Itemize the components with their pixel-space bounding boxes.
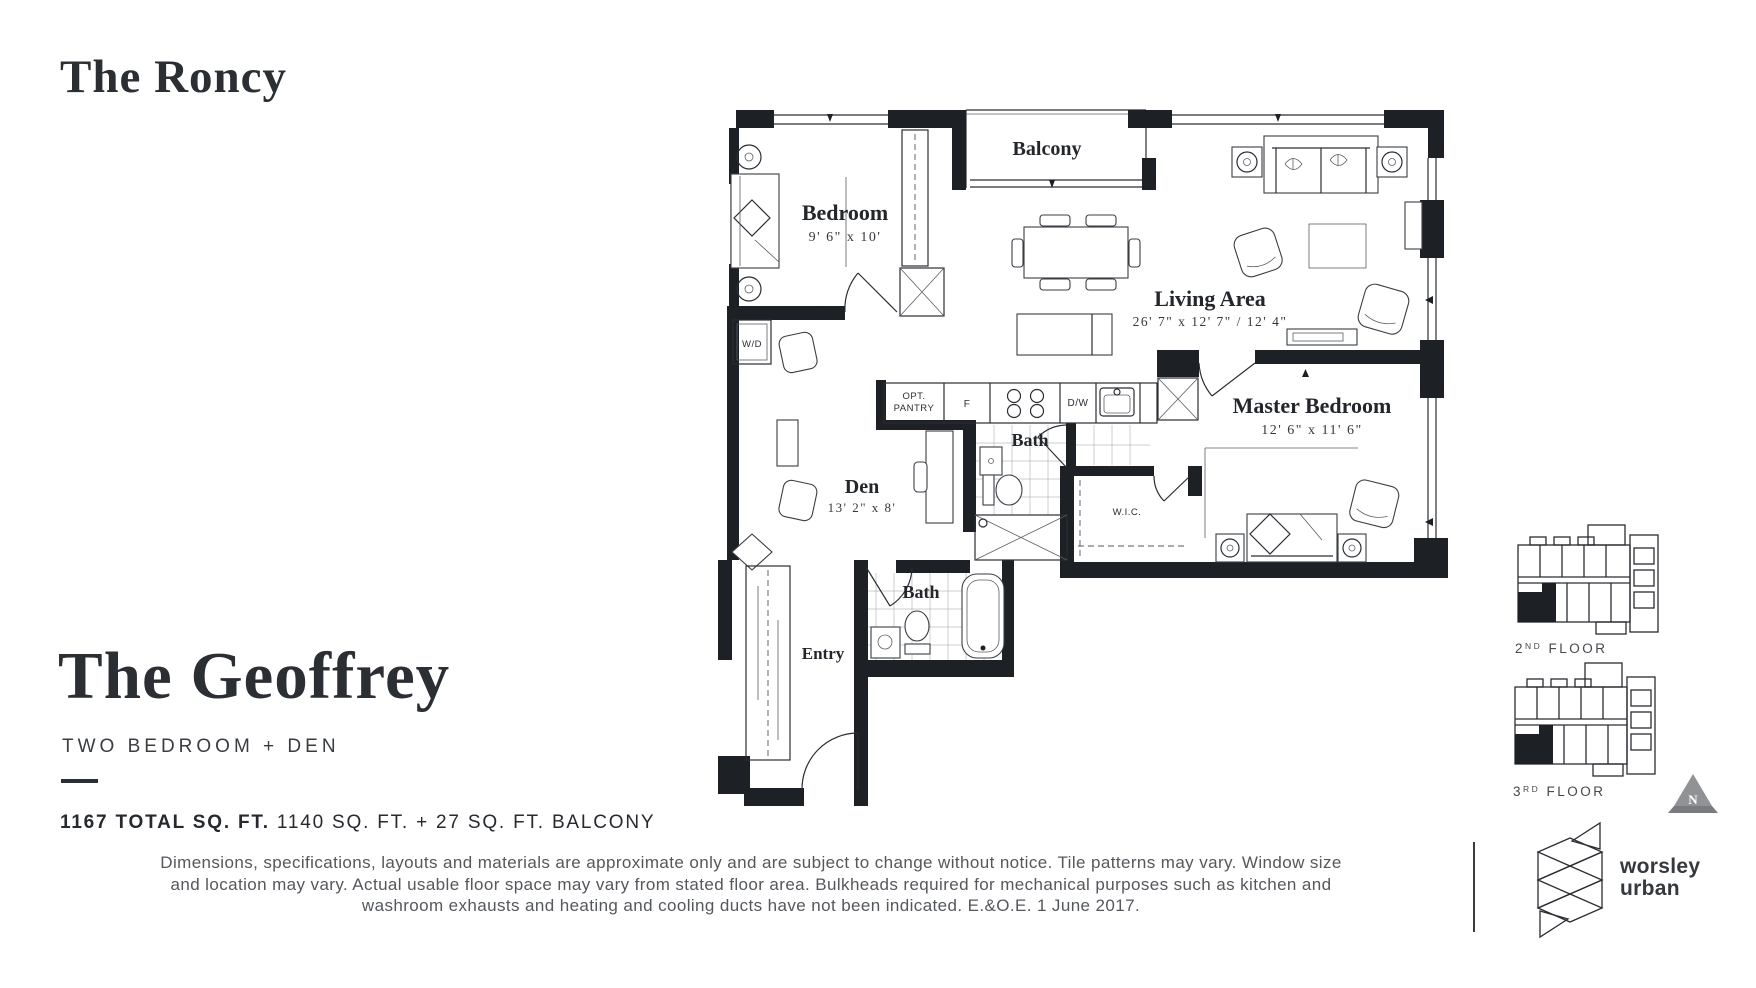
bath1-label: Bath: [1011, 430, 1048, 450]
logo-lattice-icon: [1538, 823, 1602, 937]
wic: W.I.C.: [1078, 480, 1186, 556]
wic-label: W.I.C.: [1113, 507, 1142, 518]
living-label: Living Area: [1154, 286, 1265, 311]
bedroom-dims: 9' 6" x 10': [809, 230, 882, 245]
footer-divider: [1473, 842, 1475, 932]
living-dims: 26' 7" x 12' 7" / 12' 4": [1133, 314, 1288, 329]
disclaimer-line-2: and location may vary. Actual usable flo…: [55, 874, 1447, 896]
floor2-word: FLOOR: [1542, 641, 1607, 656]
master-bedroom: Master Bedroom 12' 6" x 11' 6": [1205, 393, 1401, 562]
area-total: 1167 TOTAL SQ. FT.: [60, 812, 270, 833]
floor3-word: FLOOR: [1540, 784, 1605, 799]
wd-label: W/D: [742, 339, 762, 350]
area-summary: 1167 TOTAL SQ. FT. 1140 SQ. FT. + 27 SQ.…: [60, 812, 655, 834]
den-label: Den: [845, 476, 879, 498]
brochure-page: The Roncy The Geoffrey TWO BEDROOM + DEN…: [0, 0, 1756, 988]
pantry-label-2: PANTRY: [894, 403, 935, 414]
keyplan-2nd-floor-label: 2ND FLOOR: [1515, 641, 1608, 656]
floorplan-drawing: OPT. PANTRY F D/W Balcony Bedroom 9' 6" …: [700, 85, 1490, 815]
floor3-ordinal: RD: [1523, 784, 1540, 794]
den-dims: 13' 2" x 8': [828, 500, 897, 515]
disclaimer-line-1: Dimensions, specifications, layouts and …: [55, 852, 1447, 874]
den: Den 13' 2" x 8': [732, 331, 953, 570]
keyplan-3rd-floor: [1515, 663, 1655, 776]
dishwasher-label: D/W: [1068, 398, 1089, 409]
master-dims: 12' 6" x 11' 6": [1261, 423, 1362, 438]
compass-n-label: N: [1688, 792, 1698, 807]
building-title: The Roncy: [60, 50, 287, 104]
logo-text-line2: urban: [1620, 878, 1700, 900]
bath2-label: Bath: [902, 582, 939, 602]
disclaimer-text: Dimensions, specifications, layouts and …: [55, 852, 1447, 917]
disclaimer-line-3: washroom exhausts and heating and coolin…: [55, 895, 1447, 917]
master-label: Master Bedroom: [1233, 393, 1392, 418]
divider-rule: [61, 779, 98, 783]
keyplans: 2ND FLOOR 3RD FLOOR N: [1490, 440, 1756, 820]
logo-text-line1: worsley: [1620, 856, 1700, 878]
hall-closet: [900, 268, 944, 316]
compass-north-icon: N: [1668, 774, 1718, 813]
balcony-label: Balcony: [1013, 138, 1082, 160]
entry-label: Entry: [802, 644, 845, 663]
living-dining-furniture: Living Area 26' 7" x 12' 7" / 12' 4": [1012, 136, 1422, 355]
kitchen: OPT. PANTRY F D/W: [884, 383, 1157, 423]
fridge-label: F: [964, 399, 971, 410]
entry: Entry: [746, 566, 845, 760]
unit-name-title: The Geoffrey: [58, 638, 450, 715]
floor2-ordinal: ND: [1525, 641, 1542, 651]
floor2-num: 2: [1515, 641, 1525, 656]
keyplan-3rd-floor-label: 3RD FLOOR: [1513, 784, 1606, 799]
worsley-urban-logo-text: worsley urban: [1620, 856, 1700, 900]
kitchen-closet: [1158, 378, 1198, 420]
unit-type-subtitle: TWO BEDROOM + DEN: [62, 736, 340, 758]
bedroom-label: Bedroom: [802, 200, 888, 225]
floor3-num: 3: [1513, 784, 1523, 799]
bath1: Bath: [975, 430, 1067, 560]
area-breakdown: 1140 SQ. FT. + 27 SQ. FT. BALCONY: [270, 812, 656, 833]
bath2: Bath: [871, 574, 1004, 658]
bedroom: Bedroom 9' 6" x 10': [731, 130, 928, 301]
keyplan-2nd-floor: [1518, 525, 1658, 634]
pantry-label-1: OPT.: [902, 391, 925, 402]
